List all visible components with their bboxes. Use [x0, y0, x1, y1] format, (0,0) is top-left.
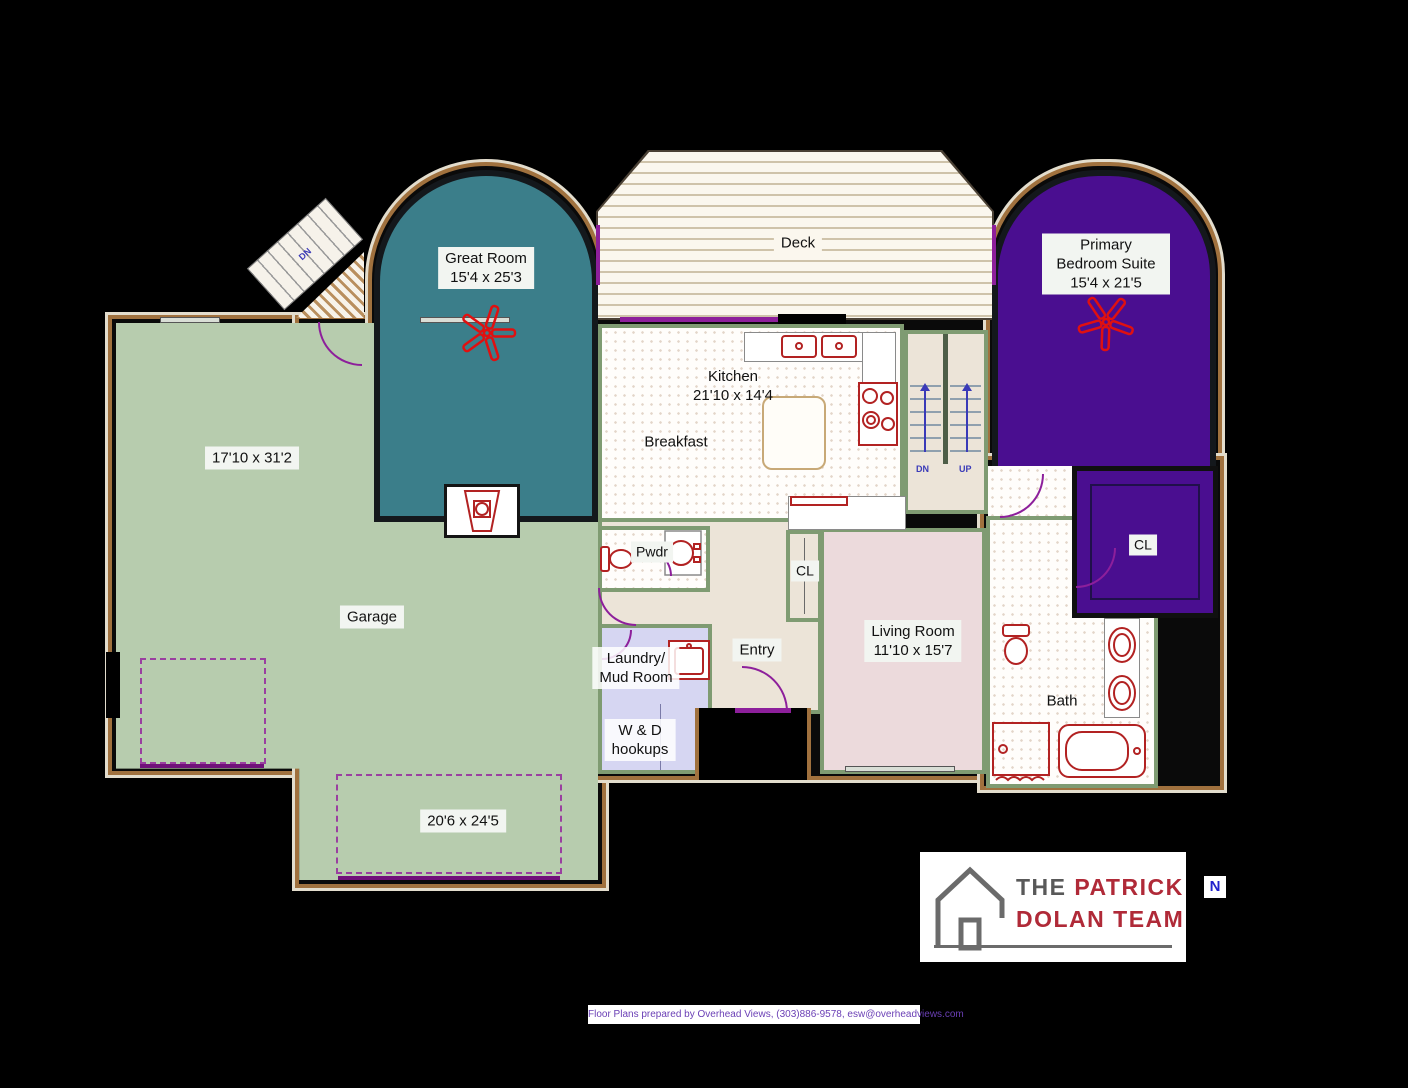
- breakfast-label: Breakfast: [637, 431, 714, 454]
- kitchen-dims: 21'10 x 14'4: [693, 386, 773, 405]
- garage-dims-main: 17'10 x 31'2: [205, 447, 299, 470]
- interior-stairs: DN UP: [904, 330, 988, 514]
- stairs-dn-label: DN: [916, 464, 929, 474]
- stove-icon: [858, 382, 898, 446]
- entry-door-marker: [735, 708, 791, 713]
- toilet-icon: [600, 544, 634, 574]
- primary-window-marker: [992, 225, 996, 285]
- living-room-label: Living Room 11'10 x 15'7: [864, 620, 961, 662]
- stairs-up-label: UP: [959, 464, 972, 474]
- floor-plan-canvas: DN DN UP: [0, 0, 1408, 1088]
- kitchen-sink-icon: [780, 334, 858, 360]
- footer-credit: Floor Plans prepared by Overhead Views, …: [588, 1005, 920, 1024]
- logo-underline: [934, 945, 1172, 948]
- garage-door-marker-left: [140, 764, 264, 768]
- logo-text: THE PATRICK DOLAN TEAM: [1016, 874, 1184, 933]
- garage-label: Garage: [340, 606, 404, 629]
- great-room-label: Great Room 15'4 x 25'3: [438, 247, 534, 289]
- garage-door-marker-main: [338, 876, 560, 880]
- garage-side-door-gap: [106, 652, 120, 718]
- shower-icon: [992, 722, 1050, 782]
- garage-dims-bay: 20'6 x 24'5: [420, 810, 506, 833]
- living-room-dims: 11'10 x 15'7: [871, 641, 954, 660]
- sink-icon: [1106, 624, 1138, 666]
- patrick-dolan-team-logo: THE PATRICK DOLAN TEAM: [920, 852, 1186, 962]
- hall-closet-label: CL: [791, 561, 819, 582]
- stair-arrow-down: [924, 386, 926, 452]
- primary-bedroom-dims: 15'4 x 21'5: [1049, 274, 1163, 293]
- ceiling-fan-icon: [1074, 290, 1138, 354]
- bath-label: Bath: [1040, 690, 1085, 713]
- deck-slider-marker: [620, 317, 778, 322]
- logo-word-the: THE: [1016, 874, 1067, 900]
- living-room-window: [845, 766, 955, 772]
- bathtub-icon: [1058, 724, 1146, 778]
- laundry-label: Laundry/ Mud Room: [592, 647, 679, 689]
- great-room-dims: 15'4 x 25'3: [445, 268, 527, 287]
- entry-label: Entry: [732, 639, 781, 662]
- fireplace-icon: [444, 484, 520, 538]
- entry-porch: [695, 708, 811, 780]
- toilet-icon: [1000, 624, 1032, 666]
- logo-word-patrick: PATRICK: [1074, 874, 1183, 900]
- great-room-window-marker: [596, 225, 600, 285]
- sink-icon: [1106, 672, 1138, 714]
- house-logo-icon: [930, 860, 1016, 952]
- logo-word-dolan-team: DOLAN TEAM: [1016, 906, 1184, 933]
- stair-arrow-up: [966, 386, 968, 452]
- deck-door-gap: [778, 314, 846, 324]
- garage-bay-outline-left: [140, 658, 266, 764]
- garage-window: [160, 317, 220, 323]
- powder-room-label: Pwdr: [631, 542, 673, 563]
- primary-bedroom-label: Primary Bedroom Suite 15'4 x 21'5: [1042, 234, 1170, 295]
- north-compass-marker: N: [1204, 876, 1226, 898]
- laundry-note: W & D hookups: [605, 719, 676, 761]
- kitchen-counter-corner: [862, 332, 896, 384]
- kitchen-island: [762, 396, 826, 470]
- exterior-stairs-dn-label: DN: [297, 246, 313, 262]
- deck-label: Deck: [774, 232, 822, 255]
- kitchen-label: Kitchen 21'10 x 14'4: [686, 365, 780, 407]
- hall-cabinet: [790, 496, 848, 506]
- stair-divider: [943, 334, 948, 464]
- ceiling-fan-icon: [455, 301, 519, 365]
- primary-closet-label: CL: [1129, 535, 1157, 556]
